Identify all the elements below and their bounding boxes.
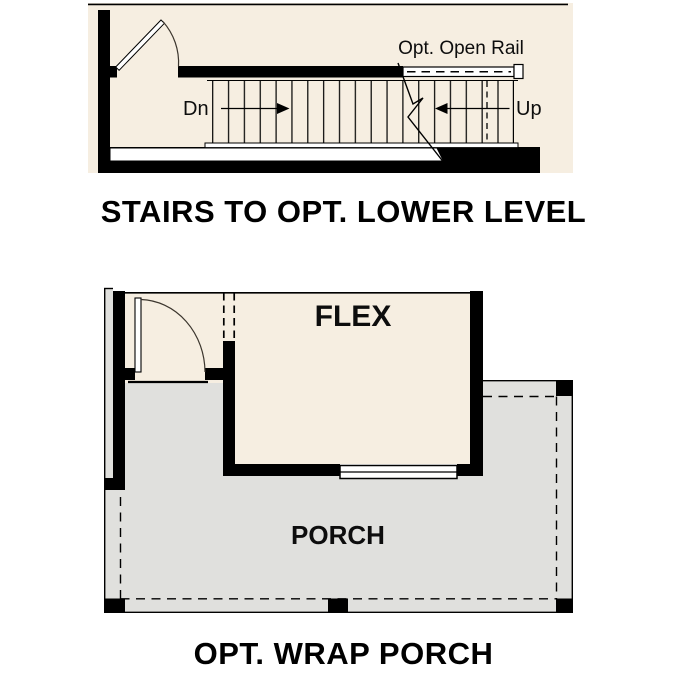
lower-landing-band [110,148,444,161]
open-rail-label: Opt. Open Rail [398,38,524,59]
porch-diagram-title: OPT. WRAP PORCH [0,636,687,672]
left-wall [98,10,110,160]
stairs-section-drawing: Dn Up Opt. Open Rail [88,3,573,173]
porch-post-bottom-middle [328,599,348,614]
porch-label: PORCH [291,520,385,550]
down-label: Dn [183,98,209,120]
up-label: Up [516,98,542,120]
stairs-diagram-title: STAIRS TO OPT. LOWER LEVEL [0,194,687,230]
wrap-porch-plan-drawing: FLEX PORCH [104,285,573,613]
right-exterior-wall [470,291,483,476]
porch-post-bottom-left [104,599,125,614]
flex-bottom-wall-right [457,464,483,476]
stairwell-wall [178,66,403,78]
stair-treads [212,80,514,143]
flex-left-wall [223,341,235,475]
entry-wall-left-stub [116,368,135,380]
porch-post-top-right [556,381,573,397]
porch-post-bottom-right [556,599,573,614]
left-exterior-wall [113,291,125,490]
stringer-bottom-band [205,143,518,148]
left-wall-end-cap [104,478,125,490]
floorplan-page: { "stairs_diagram": { "title": "STAIRS T… [0,0,687,687]
door-leaf [135,298,141,372]
porch-right-wing [483,380,573,613]
stair-run [205,80,518,148]
entry-wall-right-stub [205,368,235,380]
flex-bottom-wall-left [223,464,340,476]
porch-entry-landing [125,383,223,478]
bottom-wall-assembly [98,147,540,173]
flex-room-label: FLEX [315,300,392,333]
open-rail-newel-cap [514,65,523,79]
flex-window [340,466,457,479]
